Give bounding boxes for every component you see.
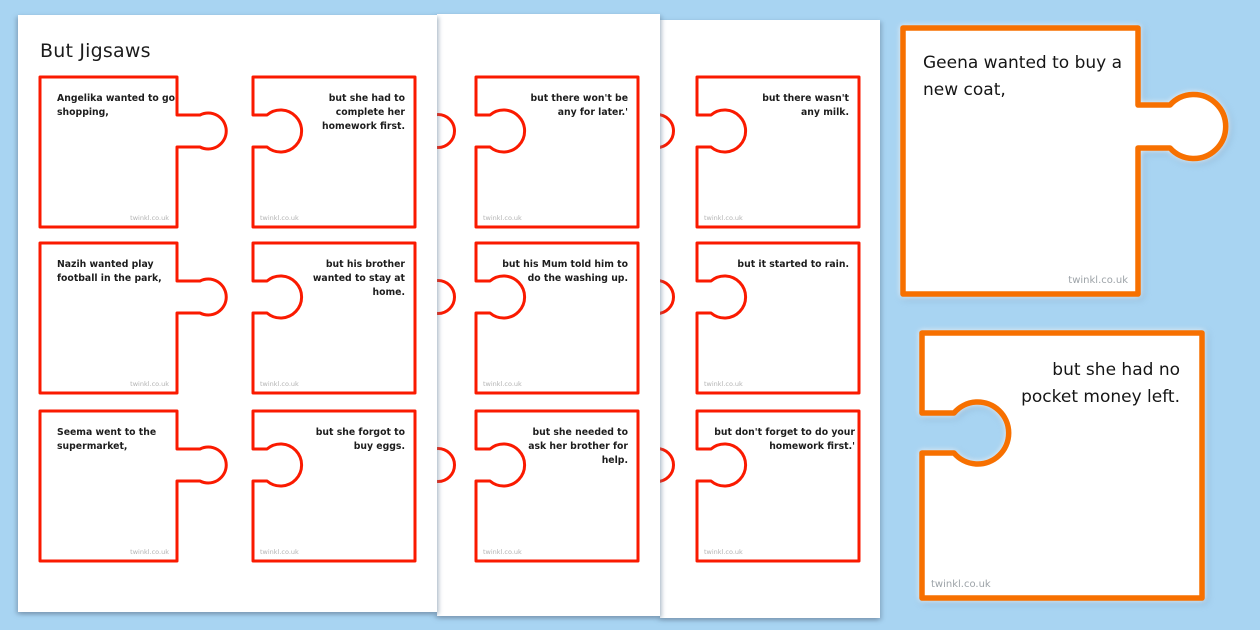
jigsaw-piece-right: but it started to rain. twinkl.co.uk bbox=[697, 243, 859, 393]
watermark: twinkl.co.uk bbox=[260, 548, 299, 556]
jigsaw-piece-right: but there won't be any for later.' twink… bbox=[476, 77, 638, 227]
large-jigsaw-text: but she had no pocket money left. bbox=[1005, 357, 1180, 411]
jigsaw-piece-right: but there wasn't any milk. twinkl.co.uk bbox=[697, 77, 859, 227]
jigsaw-text: Seema went to the supermarket, bbox=[57, 426, 187, 454]
watermark: twinkl.co.uk bbox=[130, 380, 169, 388]
jigsaw-text: Nazih wanted play football in the park, bbox=[57, 258, 187, 286]
watermark: twinkl.co.uk bbox=[704, 214, 743, 222]
large-jigsaw-text: Geena wanted to buy a new coat, bbox=[923, 50, 1123, 104]
jigsaw-piece-left: Nazih wanted play football in the park, … bbox=[40, 243, 177, 393]
watermark: twinkl.co.uk bbox=[704, 548, 743, 556]
watermark: twinkl.co.uk bbox=[130, 214, 169, 222]
watermark: twinkl.co.uk bbox=[483, 214, 522, 222]
watermark: twinkl.co.uk bbox=[1068, 275, 1128, 286]
jigsaw-piece-right: but his Mum told him to do the washing u… bbox=[476, 243, 638, 393]
jigsaw-text: but there won't be any for later.' bbox=[518, 92, 628, 120]
watermark: twinkl.co.uk bbox=[704, 380, 743, 388]
jigsaw-text: but it started to rain. bbox=[709, 258, 849, 272]
worksheet-page-1: But Jigsaws Angelika wanted to go shoppi… bbox=[18, 15, 437, 612]
jigsaw-text: but there wasn't any milk. bbox=[751, 92, 849, 120]
page-title: But Jigsaws bbox=[40, 40, 151, 62]
watermark: twinkl.co.uk bbox=[483, 380, 522, 388]
jigsaw-piece-left: Seema went to the supermarket, twinkl.co… bbox=[40, 411, 177, 561]
watermark: twinkl.co.uk bbox=[483, 548, 522, 556]
watermark: twinkl.co.uk bbox=[130, 548, 169, 556]
jigsaw-piece-right: but his brother wanted to stay at home. … bbox=[253, 243, 415, 393]
jigsaw-piece-right: but don't forget to do your homework fir… bbox=[697, 411, 859, 561]
worksheet-page-2: but there won't be any for later.' twink… bbox=[437, 14, 660, 616]
jigsaw-piece-right: but she forgot to buy eggs. twinkl.co.uk bbox=[253, 411, 415, 561]
large-jigsaw-piece-left: Geena wanted to buy a new coat, twinkl.c… bbox=[903, 28, 1138, 294]
jigsaw-piece-left: Angelika wanted to go shopping, twinkl.c… bbox=[40, 77, 177, 227]
watermark: twinkl.co.uk bbox=[931, 579, 991, 590]
jigsaw-text: but his brother wanted to stay at home. bbox=[301, 258, 405, 300]
large-jigsaw-piece-right: but she had no pocket money left. twinkl… bbox=[922, 333, 1202, 598]
worksheet-preview: But Jigsaws Angelika wanted to go shoppi… bbox=[0, 0, 1260, 630]
jigsaw-text: but don't forget to do your homework fir… bbox=[699, 426, 855, 454]
worksheet-page-3: but there wasn't any milk. twinkl.co.uk … bbox=[660, 20, 880, 618]
jigsaw-piece-right: but she had to complete her homework fir… bbox=[253, 77, 415, 227]
jigsaw-text: Angelika wanted to go shopping, bbox=[57, 92, 187, 120]
jigsaw-text: but she needed to ask her brother for he… bbox=[516, 426, 628, 468]
jigsaw-piece-right: but she needed to ask her brother for he… bbox=[476, 411, 638, 561]
jigsaw-text: but she forgot to buy eggs. bbox=[301, 426, 405, 454]
jigsaw-text: but his Mum told him to do the washing u… bbox=[502, 258, 628, 286]
jigsaw-text: but she had to complete her homework fir… bbox=[309, 92, 405, 134]
watermark: twinkl.co.uk bbox=[260, 380, 299, 388]
watermark: twinkl.co.uk bbox=[260, 214, 299, 222]
